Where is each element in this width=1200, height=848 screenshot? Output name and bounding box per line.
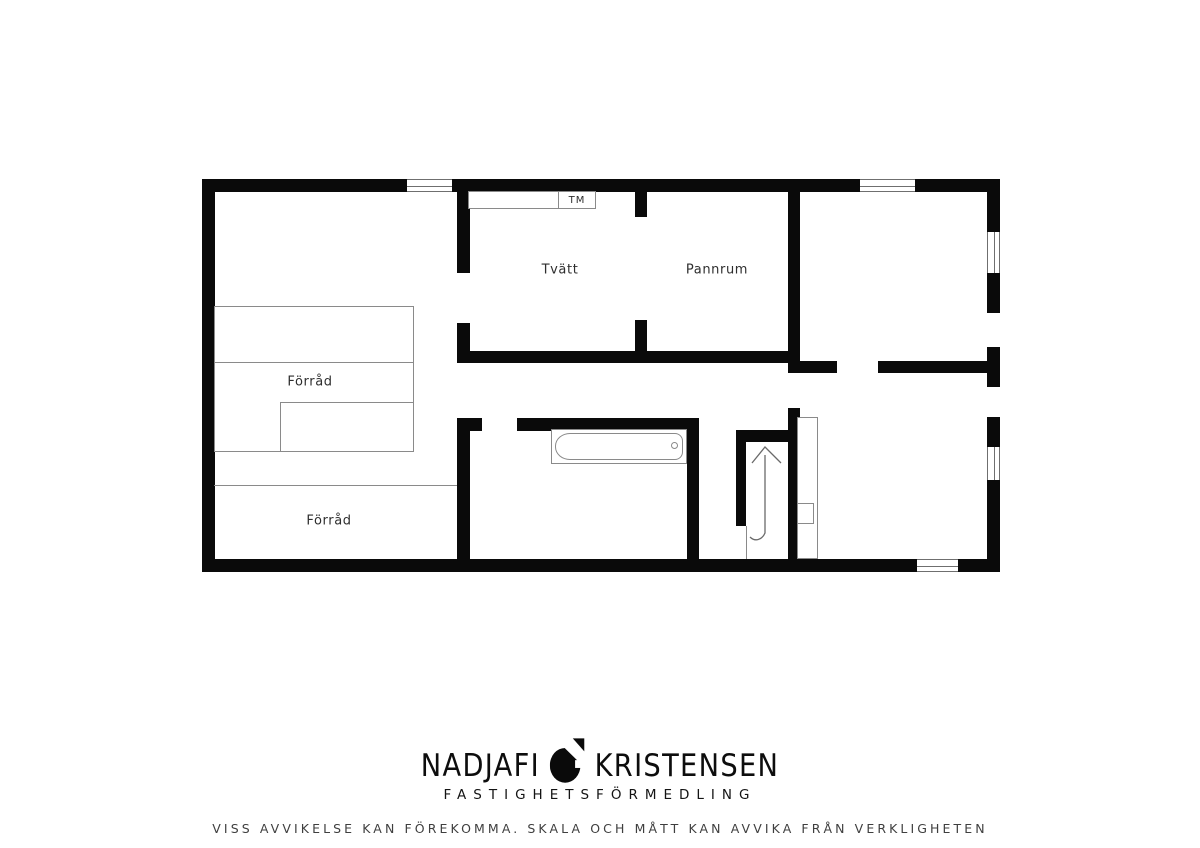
agency-logo: NADJAFI KRISTENSEN [72,737,1128,782]
storage-partition-line [214,485,457,486]
agency-logo-mark-icon [550,737,585,785]
wall-bath-left [457,418,470,559]
floor-plan: TM Tvätt Pannrum Förråd Förråd [0,0,1200,848]
wall-outer-top-a [202,179,407,192]
wall-boiler-right [788,192,800,373]
room-label-storage-upper: Förråd [287,375,332,390]
wall-stair-top-stub [742,430,793,442]
shelf-divider-line-3 [280,402,281,452]
chimney-flue-box [797,503,814,524]
wall-rightroom-north-b [878,361,988,373]
wall-laundry-south [457,351,793,363]
shelf-divider-line-1 [214,362,414,363]
wall-outer-right-a [987,179,1000,232]
wall-outer-right-b [987,273,1000,313]
wall-outer-bottom-a [202,559,917,572]
room-label-storage-lower: Förråd [306,514,351,529]
wall-laundry-boiler-divider-upper [635,192,647,217]
wall-outer-right-d [987,417,1000,447]
stair-direction-arrow [744,442,788,554]
wall-rightroom-north-a [788,361,837,373]
washing-machine: TM [558,191,596,209]
window-bottom [917,559,958,572]
disclaimer-text: VISS AVVIKELSE KAN FÖREKOMMA. SKALA OCH … [0,821,1200,836]
brand-name-second: KRISTENSEN [595,751,780,782]
wall-laundry-boiler-divider-lower [635,320,647,352]
window-top-left [407,179,452,192]
window-top-right [860,179,915,192]
wall-outer-right-e [987,480,1000,572]
brand-tagline: FASTIGHETSFÖRMEDLING [0,787,1200,803]
bathtub [555,433,683,460]
washing-machine-label: TM [569,195,586,206]
room-label-boiler: Pannrum [686,263,748,278]
wall-bath-right [687,418,699,559]
room-label-laundry: Tvätt [542,263,579,278]
bathtub-drain [671,442,678,449]
window-right-lower [987,447,1000,480]
chimney-shaft [797,417,818,559]
window-right-upper [987,232,1000,273]
shelf-divider-line-2 [280,402,414,403]
wall-outer-right-c [987,347,1000,387]
brand-name-first: NADJAFI [421,751,540,782]
floorplan-page: { "plan": { "rooms": [ {"id": "tvatt", "… [0,0,1200,848]
